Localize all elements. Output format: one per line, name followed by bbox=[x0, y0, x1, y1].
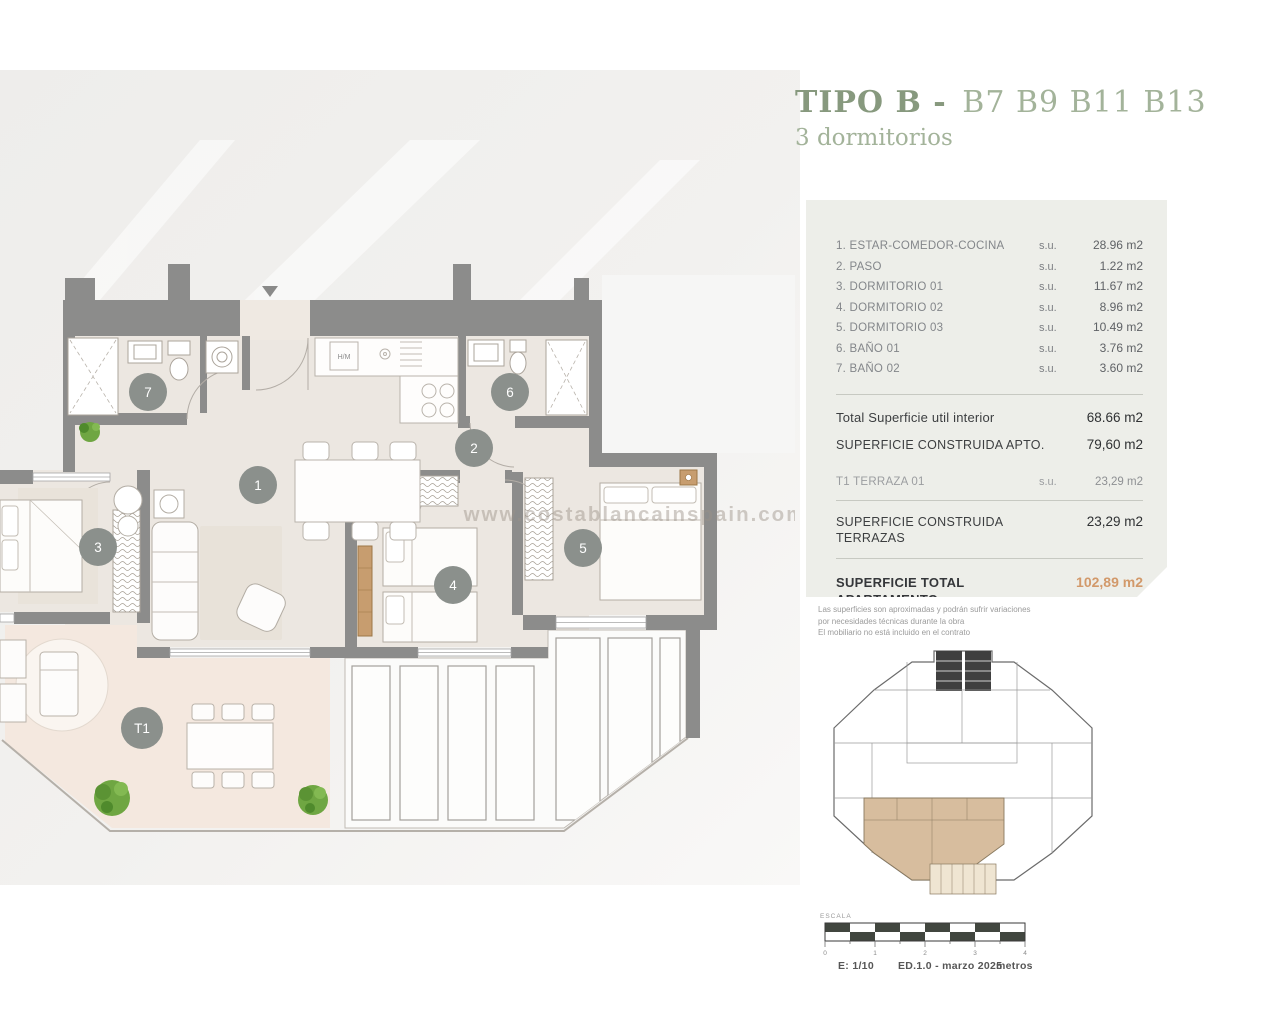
marker-4: 4 bbox=[434, 566, 472, 604]
svg-text:3: 3 bbox=[973, 950, 977, 957]
divider bbox=[836, 394, 1143, 395]
marker-7: 7 bbox=[129, 373, 167, 411]
marker-3: 3 bbox=[79, 528, 117, 566]
tree bbox=[94, 780, 130, 816]
divider bbox=[836, 558, 1143, 559]
svg-text:1: 1 bbox=[873, 950, 877, 957]
svg-text:5: 5 bbox=[579, 541, 587, 556]
svg-text:4: 4 bbox=[449, 578, 457, 593]
neighbor-unit-blank bbox=[602, 275, 795, 453]
svg-text:1: 1 bbox=[254, 478, 262, 493]
ruler-tick-labels: 0 1 2 3 4 bbox=[823, 950, 1027, 957]
scale-caption: ESCALA bbox=[820, 913, 1050, 920]
kitchen-appliance-label: H/M bbox=[338, 354, 351, 361]
disclaimer-line: El mobiliario no está incluido en el con… bbox=[818, 627, 1031, 639]
marker-5: 5 bbox=[564, 529, 602, 567]
disclaimer: Las superficies son aproximadas y podrán… bbox=[818, 604, 1031, 639]
total-util-row: Total Superficie util interior68.66 m2 bbox=[836, 410, 1143, 425]
unit-label: metros bbox=[996, 960, 1033, 972]
edition-date: ED.1.0 - marzo 2025 bbox=[898, 960, 1002, 972]
svg-text:2: 2 bbox=[923, 950, 927, 957]
svg-text:2: 2 bbox=[470, 441, 478, 456]
page-title: TIPO B - B7 B9 B11 B13 bbox=[795, 86, 1215, 120]
scale-ratio: E: 1/10 bbox=[838, 960, 874, 972]
svg-text:4: 4 bbox=[1023, 950, 1027, 957]
svg-text:3: 3 bbox=[94, 540, 102, 555]
marker-1: 1 bbox=[239, 466, 277, 504]
total-apartamento-row: SUPERFICIE TOTAL APARTAMENTO102,89 m2 bbox=[836, 574, 1143, 608]
title-type: TIPO B - bbox=[795, 85, 947, 120]
table-row: 4. DORMITORIO 02s.u.8.96 m2 bbox=[836, 300, 1143, 321]
ruler-ticks bbox=[825, 941, 1025, 947]
bedroom-5 bbox=[525, 470, 701, 600]
table-row: 5. DORMITORIO 03s.u.10.49 m2 bbox=[836, 320, 1143, 341]
svg-text:6: 6 bbox=[506, 385, 514, 400]
title-block: TIPO B - B7 B9 B11 B13 3 dormitorios bbox=[795, 86, 1215, 151]
desk-unit bbox=[358, 546, 372, 636]
svg-text:T1: T1 bbox=[134, 721, 150, 736]
table-row: 1. ESTAR-COMEDOR-COCINAs.u.28.96 m2 bbox=[836, 238, 1143, 259]
terraza-row: T1 TERRAZA 01s.u.23,29 m2 bbox=[836, 476, 1143, 488]
title-subtitle: 3 dormitorios bbox=[795, 125, 1215, 151]
room-surface-list: 1. ESTAR-COMEDOR-COCINAs.u.28.96 m2 2. P… bbox=[836, 238, 1143, 382]
keyplan-terrace-slats bbox=[930, 864, 996, 894]
dining-table bbox=[295, 460, 420, 522]
marker-2: 2 bbox=[455, 429, 493, 467]
pouf bbox=[118, 516, 138, 536]
table-row: 3. DORMITORIO 01s.u.11.67 m2 bbox=[836, 279, 1143, 300]
terrace-table bbox=[187, 723, 273, 769]
surface-table-panel: 1. ESTAR-COMEDOR-COCINAs.u.28.96 m2 2. P… bbox=[806, 200, 1167, 597]
construida-terrazas-row: SUPERFICIE CONSTRUIDA TERRAZAS23,29 m2 bbox=[836, 514, 1143, 546]
sofa bbox=[152, 522, 198, 640]
sun-lounger bbox=[40, 652, 78, 716]
pouf bbox=[114, 486, 142, 514]
watermark: www.costablancainspain.com bbox=[463, 503, 795, 526]
checker-cells bbox=[825, 923, 1025, 941]
building-key-plan bbox=[812, 648, 1117, 908]
wardrobe bbox=[525, 478, 553, 580]
disclaimer-line: Las superficies son aproximadas y podrán… bbox=[818, 604, 1031, 616]
tree bbox=[298, 785, 328, 815]
svg-text:0: 0 bbox=[823, 950, 827, 957]
table-row: 7. BAÑO 02s.u.3.60 m2 bbox=[836, 361, 1143, 382]
scale-ruler: 0 1 2 3 4 bbox=[820, 923, 1035, 963]
marker-6: 6 bbox=[491, 373, 529, 411]
table-row: 2. PASOs.u.1.22 m2 bbox=[836, 259, 1143, 280]
title-units: B7 B9 B11 B13 bbox=[962, 85, 1206, 120]
scale-bar: ESCALA 0 1 2 bbox=[820, 913, 1050, 963]
marker-t1: T1 bbox=[121, 707, 163, 749]
floor-plan: H/M bbox=[0, 80, 795, 880]
svg-text:7: 7 bbox=[144, 385, 152, 400]
disclaimer-line: por necesidades técnicas durante la obra bbox=[818, 616, 1031, 628]
plan-page: H/M bbox=[0, 0, 1280, 1024]
divider bbox=[836, 500, 1143, 501]
construida-apto-row: SUPERFICIE CONSTRUIDA APTO.79,60 m2 bbox=[836, 437, 1143, 452]
table-row: 6. BAÑO 01s.u.3.76 m2 bbox=[836, 341, 1143, 362]
